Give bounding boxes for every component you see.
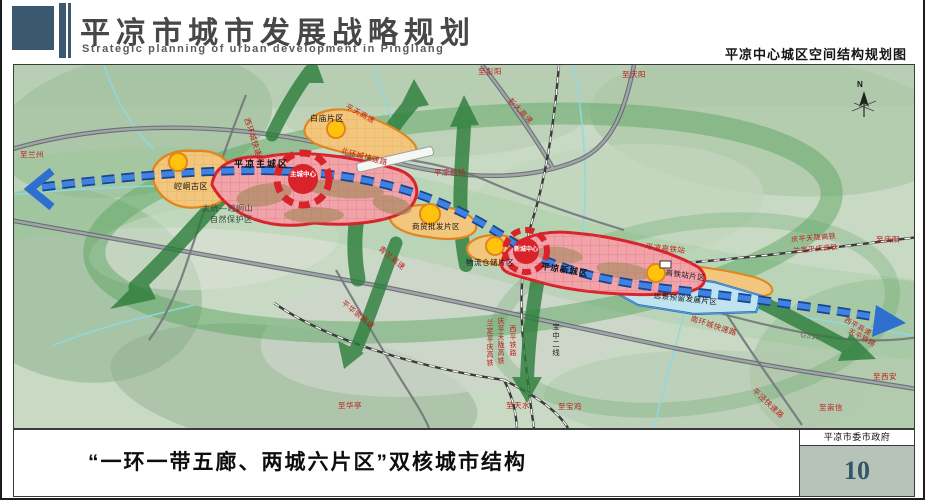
map-graphic xyxy=(14,65,914,428)
rail-label-ldpq-hsr-sw: 兰定平庆高铁 xyxy=(486,319,493,367)
direction-qingyang-right: 至庆阳 xyxy=(876,236,900,244)
zone-label-logistics: 物流仓储片区 xyxy=(466,259,514,267)
zone-label-baimiao: 白庙片区 xyxy=(310,115,344,123)
planning-map: N 至兰州 至彭阳 至庆阳 至庆阳 至西安 至崇信 至华亭 至天水 至宝鸡 平天… xyxy=(13,64,915,429)
rail-label-baozhong-2: 宝中二线 xyxy=(552,323,560,357)
direction-pengyang: 至彭阳 xyxy=(478,68,502,76)
agency-name: 平凉市委市政府 xyxy=(800,430,914,446)
title-block: 平凉市委市政府 10 xyxy=(799,430,914,496)
rail-label-qptl-hsr-sw: 庆平天陇高铁 xyxy=(497,317,504,365)
zone-label-kongtong: 崆峒古区 xyxy=(174,183,208,191)
nature-reserve-line1: 太统—崆峒山 xyxy=(202,205,253,213)
header-accent-bar-thin xyxy=(68,3,71,58)
page-title-english: Strategic planning of urban development … xyxy=(82,43,445,55)
direction-chongxin: 至崇信 xyxy=(819,404,843,412)
zone-label-trade: 商贸批发片区 xyxy=(412,223,460,231)
landmark-airport: 平凉机场 xyxy=(434,169,466,177)
planning-document-page: 平凉市城市发展战略规划 Strategic planning of urban … xyxy=(0,0,925,500)
core-label-new-center: 新城中心 xyxy=(512,247,540,253)
rail-label-xiping-rail: 西平铁路 xyxy=(509,325,516,357)
zone-label-main-city: 平凉主城区 xyxy=(234,160,289,169)
structure-caption: “一环一带五廊、两城六片区”双核城市结构 xyxy=(88,446,527,476)
direction-lanzhou: 至兰州 xyxy=(20,151,44,159)
direction-tianshui: 至天水 xyxy=(506,402,530,410)
core-label-main-center: 主城中心 xyxy=(288,172,318,179)
direction-qingyang-top: 至庆阳 xyxy=(622,71,646,79)
header-accent-bar xyxy=(59,3,66,58)
direction-huating: 至华亭 xyxy=(338,402,362,410)
footer-band: “一环一带五廊、两城六片区”双核城市结构 平凉市委市政府 10 xyxy=(13,429,915,497)
direction-xian: 至西安 xyxy=(873,373,897,381)
map-subtitle: 平凉中心城区空间结构规划图 xyxy=(725,44,907,63)
nature-reserve-line2: 自然保护区 xyxy=(210,216,253,224)
compass-north-label: N xyxy=(857,81,863,89)
header-accent-square xyxy=(12,6,54,50)
direction-baoji: 至宝鸡 xyxy=(558,403,582,411)
page-number: 10 xyxy=(800,446,914,496)
